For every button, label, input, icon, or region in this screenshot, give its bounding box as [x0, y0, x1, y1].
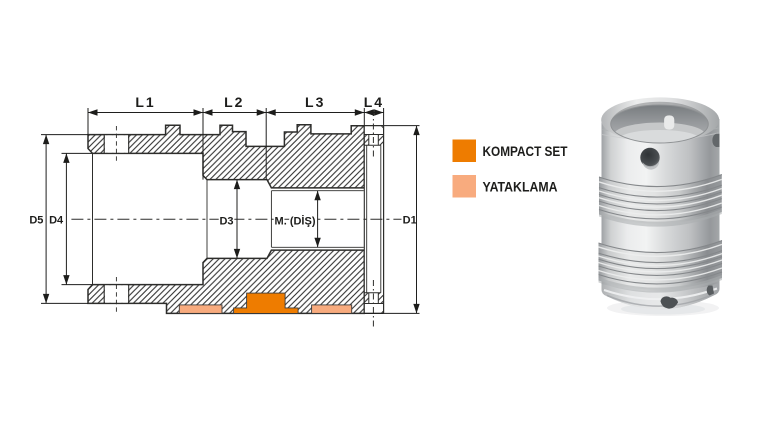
svg-text:L4: L4 — [364, 94, 384, 110]
svg-text:KOMPACT SET: KOMPACT SET — [483, 144, 568, 160]
svg-text:D1: D1 — [403, 215, 417, 227]
svg-text:L1: L1 — [135, 94, 155, 110]
svg-text:M. (DİŞ): M. (DİŞ) — [275, 214, 316, 227]
svg-text:D3: D3 — [219, 215, 233, 227]
svg-text:D4: D4 — [49, 215, 64, 227]
svg-text:L2: L2 — [224, 94, 244, 110]
svg-text:YATAKLAMA: YATAKLAMA — [483, 180, 558, 196]
svg-text:L3: L3 — [305, 94, 325, 110]
svg-text:D5: D5 — [29, 215, 43, 227]
